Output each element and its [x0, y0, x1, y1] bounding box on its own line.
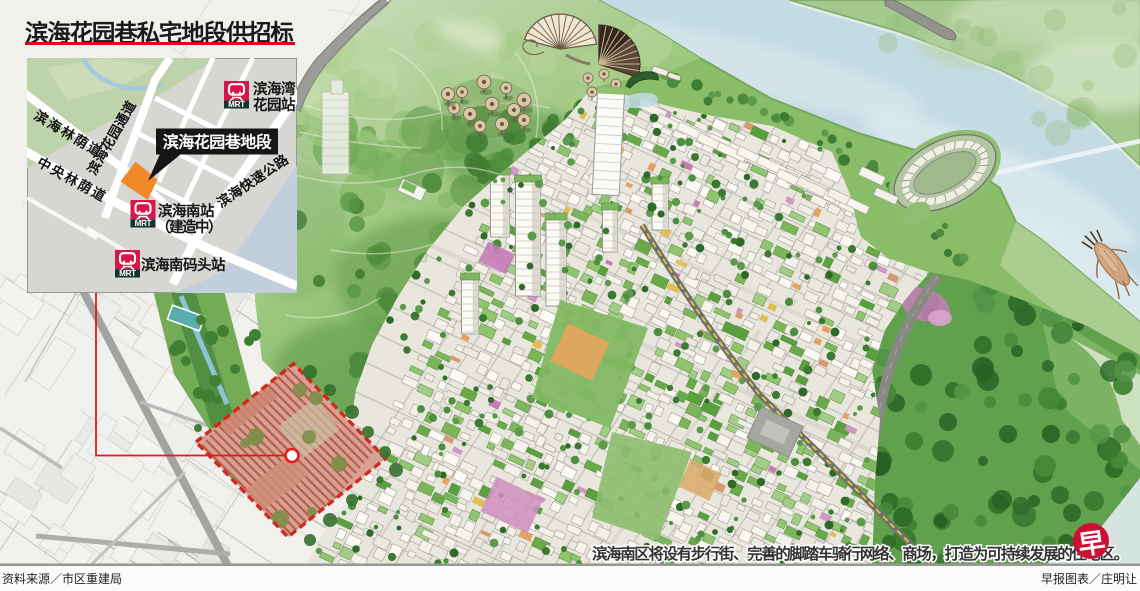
svg-text:滨海南码头站: 滨海南码头站 — [141, 256, 226, 274]
svg-text:花园站: 花园站 — [253, 96, 296, 114]
svg-text:MRT: MRT — [228, 100, 245, 109]
svg-text:（建造中）: （建造中） — [156, 218, 221, 236]
svg-text:滨海南区将设有步行街、完善的脚踏车骑行网络、商场，打造为可持: 滨海南区将设有步行街、完善的脚踏车骑行网络、商场，打造为可持续发展的住宅区。 — [592, 544, 1128, 563]
svg-text:MRT: MRT — [135, 219, 152, 228]
svg-text:滨海花园巷地段: 滨海花园巷地段 — [163, 133, 273, 152]
svg-text:MRT: MRT — [119, 269, 136, 278]
svg-text:滨海湾: 滨海湾 — [253, 80, 296, 98]
svg-text:滨海南站: 滨海南站 — [158, 202, 215, 220]
